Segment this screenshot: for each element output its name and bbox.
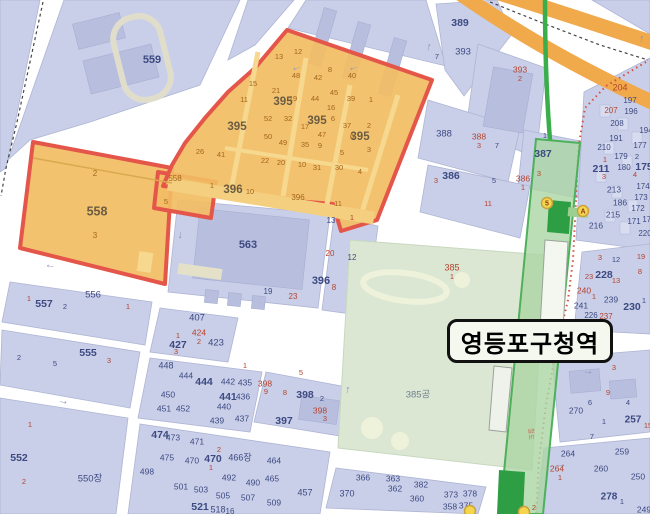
- parcel-label: 2: [197, 337, 201, 346]
- parcel-label: 550장: [78, 474, 103, 485]
- parcel-label: 3: [174, 347, 178, 356]
- parcel-label: 171: [627, 217, 641, 226]
- parcel-label: 35: [301, 140, 309, 149]
- parcel-label: 241: [574, 300, 588, 310]
- parcel-label: 16: [327, 103, 335, 112]
- parcel-label: 1: [450, 272, 454, 281]
- parcel-label: 32: [284, 114, 292, 123]
- parcel-label: 436: [236, 391, 250, 401]
- parcel-label: 507: [241, 492, 255, 502]
- parcel-label: 556: [85, 290, 101, 301]
- parcel-label: 4: [633, 170, 637, 179]
- parcel-label: 8: [283, 388, 287, 397]
- parcel-label: 175: [635, 161, 650, 173]
- parcel-label: 2: [93, 169, 98, 178]
- parcel-label: 1: [558, 473, 562, 482]
- parcel-label: 2: [63, 302, 67, 311]
- parcel-label: 9: [318, 141, 322, 150]
- parcel-label: 503: [194, 484, 208, 494]
- parcel-label: 10: [298, 160, 306, 169]
- parcel-label: 257: [625, 415, 642, 426]
- parcel-label: 170: [642, 215, 650, 224]
- parcel-label: 20: [277, 158, 285, 167]
- exit-marker-label: A: [580, 208, 585, 215]
- parcel-label: 12: [294, 47, 302, 56]
- parcel-label: 423: [208, 338, 224, 349]
- exit-marker-label: 5: [545, 200, 549, 207]
- parcel-label: 396: [291, 193, 305, 202]
- parcel-label: 19: [637, 252, 645, 261]
- parcel-label: 13: [612, 276, 620, 285]
- parcel-label: 216: [589, 220, 603, 230]
- parcel-label: 15: [249, 79, 257, 88]
- parcel-label: 385공: [406, 390, 431, 401]
- parcel-label: 557: [35, 298, 53, 310]
- parcel-label: 475: [160, 452, 174, 462]
- parcel-label: 473: [166, 432, 180, 442]
- parcel-label: 5: [340, 148, 344, 157]
- parcel-label: 396: [223, 184, 242, 196]
- parcel-label: 3: [367, 145, 371, 154]
- parcel-label: 3: [93, 231, 98, 240]
- parcel-label: 250: [631, 471, 645, 481]
- parcel-label: 360: [410, 493, 424, 503]
- parcel-label: 1: [592, 292, 596, 301]
- parcel-label: 3: [602, 172, 606, 181]
- parcel-label: 173: [634, 193, 648, 202]
- parcel-label: 196: [624, 107, 638, 116]
- parcel-label: 215: [606, 209, 620, 219]
- parcel-label: 239: [604, 294, 618, 304]
- parcel-label: 13: [327, 216, 336, 225]
- parcel-label: 7: [435, 52, 439, 61]
- parcel-label: 3: [323, 414, 327, 423]
- parcel-label: 501: [174, 481, 188, 491]
- parcel-label: 518: [210, 504, 225, 514]
- parcel-label: 44: [311, 94, 319, 103]
- parcel-label: 366: [356, 472, 370, 482]
- parcel-label: 5: [53, 359, 57, 368]
- station-name-label: 영등포구청역: [447, 319, 613, 363]
- parcel-label: 559: [143, 54, 161, 66]
- one-way-arrow-icon: →: [582, 365, 594, 378]
- parcel-label: 228: [595, 269, 613, 281]
- parcel-label: 204: [612, 82, 627, 92]
- parcel-label: 2: [22, 477, 26, 486]
- parcel-label: 373: [444, 489, 458, 499]
- parcel-label: 174: [636, 182, 650, 191]
- parcel-label: 555: [79, 347, 97, 359]
- parcel-label: 1: [126, 302, 130, 311]
- parcel-label: 386: [516, 173, 530, 183]
- parcel-label: 41: [217, 150, 225, 159]
- parcel-label: 388: [436, 129, 452, 140]
- parcel-label: 1: [209, 463, 213, 472]
- parcel-label: 1: [602, 417, 606, 426]
- parcel-label: 358: [443, 501, 457, 511]
- parcel-label: 278: [601, 492, 618, 503]
- parcel-label: 5: [164, 197, 168, 206]
- map-canvas[interactable]: 5591312484281521194445164039111523261737…: [0, 0, 650, 514]
- parcel-label: 2: [17, 353, 21, 362]
- one-way-arrow-icon: ←: [44, 258, 57, 271]
- parcel-label: 424: [192, 327, 206, 337]
- parcel-label: 435: [238, 377, 252, 387]
- parcel-label: 440: [217, 401, 231, 411]
- parcel-label: 1: [210, 181, 214, 190]
- parcel-label: 30: [335, 163, 343, 172]
- parcel-label: 16: [226, 507, 235, 514]
- parcel-label: 387: [534, 148, 552, 160]
- parcel-label: 389: [451, 17, 469, 29]
- parcel-label: 20: [326, 249, 335, 258]
- parcel-label: 3: [107, 356, 111, 365]
- parcel-label: 5: [492, 176, 496, 185]
- parcel-label: 470: [185, 455, 199, 465]
- parcel-label: 2: [518, 74, 522, 83]
- parcel-label: 45: [330, 88, 338, 97]
- parcel-label: 1: [27, 294, 31, 303]
- parcel-label: 442: [221, 376, 235, 386]
- one-way-arrow-icon: →: [57, 394, 70, 407]
- parcel-label: 4: [626, 398, 630, 407]
- parcel-label: 362: [388, 483, 402, 493]
- station-name-text: 영등포구청역: [461, 324, 599, 359]
- parcel-label: 393: [513, 64, 527, 74]
- parcel-label: 395: [273, 96, 293, 108]
- parcel-label: 363: [386, 473, 400, 483]
- parcel-label: 490: [246, 477, 260, 487]
- parcel-label: 437: [235, 413, 249, 423]
- parcel-label: 452: [176, 403, 190, 413]
- parcel-label: 49: [279, 138, 287, 147]
- parcel-label: 191: [609, 134, 623, 143]
- parcel-label: 47: [318, 130, 326, 139]
- parcel-label: 9: [606, 388, 610, 397]
- parcel-label: 207: [604, 106, 618, 115]
- parcel-label: 2: [320, 394, 324, 403]
- parcel-label: 3: [477, 141, 481, 150]
- parcel-label: 9: [264, 387, 268, 396]
- parcel-label: 172: [631, 204, 645, 213]
- one-way-arrow-icon: →: [555, 458, 567, 471]
- parcel-label: 23: [289, 292, 298, 301]
- parcel-label: 12: [612, 255, 620, 264]
- parcel-label: 7: [495, 141, 499, 150]
- parcel-label: 4: [358, 167, 362, 176]
- parcel-label: 8: [332, 283, 337, 292]
- parcel-label: 398: [296, 389, 314, 401]
- parcel-label: 1: [350, 213, 354, 222]
- parcel-label: 492: [222, 472, 236, 482]
- parcel-label: 52: [264, 114, 272, 123]
- parcel-label: 180: [617, 163, 631, 172]
- parcel-label: 457: [297, 487, 312, 497]
- parcel-label: 249: [637, 504, 650, 514]
- parcel-label: 558: [87, 204, 108, 218]
- parcel-label: 382: [414, 479, 428, 489]
- parcel-label: 186: [613, 197, 627, 207]
- parcel-label: 388: [472, 131, 486, 141]
- parcel-label: 498: [140, 466, 154, 476]
- parcel-label: 6: [331, 114, 335, 123]
- parcel-label: 259: [615, 446, 629, 456]
- parcel-label: 21: [272, 86, 280, 95]
- parcel-label: 521: [191, 501, 209, 513]
- parcel-label: 3: [598, 253, 602, 262]
- parcel-label: 264: [561, 448, 575, 458]
- parcel-label: 197: [623, 96, 637, 105]
- parcel-label: 11: [334, 199, 342, 208]
- parcel-label: 393: [455, 47, 471, 58]
- parcel-label: 444: [195, 376, 213, 388]
- parcel-label: 11: [240, 95, 248, 104]
- parcel-label: 260: [594, 463, 608, 473]
- map-viewport[interactable]: 5591312484281521194445164039111523261737…: [0, 0, 650, 514]
- parcel-label: 42: [314, 73, 322, 82]
- parcel-label: 11: [484, 199, 492, 208]
- parcel-label: 7: [590, 432, 594, 441]
- parcel-label: 208: [610, 119, 624, 128]
- parcel-label: 370: [339, 488, 354, 498]
- parcel-label: 395: [227, 121, 247, 133]
- parcel-label: 505: [216, 490, 230, 500]
- parcel-label: 1: [620, 497, 624, 506]
- station-platform: [540, 240, 568, 330]
- parcel-label: 407: [189, 313, 205, 324]
- parcel-label: 6: [588, 398, 592, 407]
- parcel-label: 378: [463, 488, 477, 498]
- parcel-label: 37: [343, 121, 351, 130]
- parcel-label: 395: [350, 131, 370, 143]
- parcel-label: 26: [196, 147, 204, 156]
- parcel-label: 3: [612, 363, 616, 372]
- parcel-label: 465: [265, 473, 279, 483]
- parcel-label: 451: [157, 403, 171, 413]
- parcel-label: 39: [347, 94, 355, 103]
- parcel-label: 1: [28, 420, 32, 429]
- parcel-label: 1: [243, 361, 247, 370]
- parcel-label: 240: [577, 285, 591, 295]
- parcel-label: 5: [299, 368, 303, 377]
- parcel-label: 396: [312, 275, 330, 287]
- parcel-label: 194: [639, 126, 650, 135]
- parcel-label: 385: [444, 262, 459, 272]
- parcel-label: 8: [638, 267, 642, 276]
- parcel-label: 1: [369, 95, 373, 104]
- parcel-label: 230: [623, 301, 641, 313]
- parcel-label: 179: [614, 152, 628, 161]
- parcel-label: 509: [267, 497, 281, 507]
- parcel-label: 466장: [228, 452, 251, 462]
- parcel-label: 439: [210, 415, 224, 425]
- parcel-label: 471: [190, 436, 204, 446]
- parcel-label: 2: [635, 152, 639, 161]
- parcel-label: 3: [434, 176, 438, 185]
- parcel-label: 213: [607, 184, 621, 194]
- parcel-label: 444: [179, 370, 193, 380]
- railway-label: 철도: [527, 428, 536, 440]
- parcel-label: 13: [275, 52, 283, 61]
- parcel-label: 270: [569, 405, 583, 415]
- parcel-label: 2: [532, 503, 536, 512]
- parcel-label: 8: [328, 65, 332, 74]
- parcel-label: 220: [638, 229, 650, 238]
- parcel-label: 386: [442, 170, 460, 182]
- parcel-label: 1: [642, 296, 646, 305]
- parcel-label: 177: [633, 141, 647, 150]
- parcel-label: 395: [307, 115, 327, 127]
- parcel-label: 22: [261, 156, 269, 165]
- parcel-label: 31: [313, 163, 321, 172]
- parcel-label: 1: [543, 131, 547, 140]
- parcel-label: 552: [10, 452, 28, 464]
- parcel-label: 1: [521, 183, 525, 192]
- parcel-label: 50: [264, 132, 272, 141]
- parcel-label: 558: [168, 174, 182, 183]
- parcel-label: 10: [246, 187, 254, 196]
- parcel-label: 3: [537, 169, 541, 178]
- parcel-label: 2: [367, 121, 371, 130]
- parcel-label: 210: [597, 143, 611, 152]
- exit-marker-icon[interactable]: [519, 507, 530, 514]
- parcel-label: 12: [348, 253, 357, 262]
- parcel-label: 563: [239, 239, 257, 251]
- parcel-label: 450: [161, 389, 175, 399]
- parcel-label: 464: [267, 455, 281, 465]
- parcel-label: 15: [644, 421, 650, 430]
- parcel-label: 448: [158, 360, 173, 370]
- parcel-label: 397: [275, 415, 293, 427]
- parcel-label: 19: [264, 287, 273, 296]
- parcel-label: 23: [585, 272, 593, 281]
- exit-marker-icon[interactable]: [465, 506, 476, 514]
